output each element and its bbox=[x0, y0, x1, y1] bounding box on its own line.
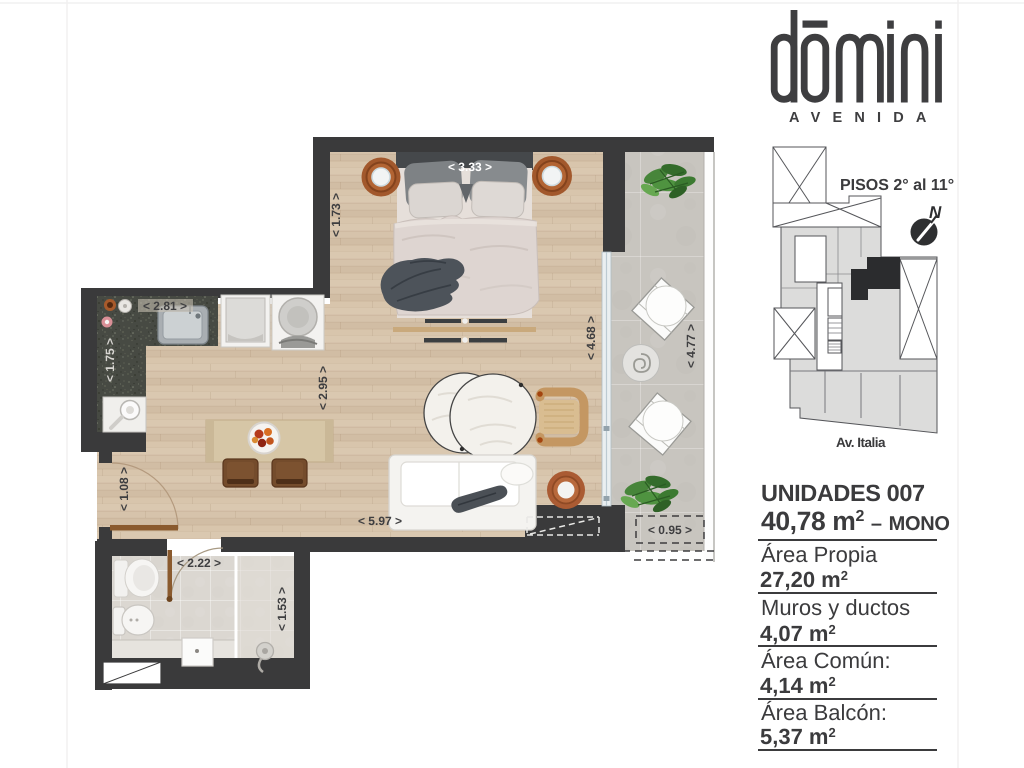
svg-text:PISOS 2° al 11°: PISOS 2° al 11° bbox=[840, 177, 954, 194]
svg-text:N: N bbox=[929, 203, 942, 222]
svg-text:< 1.73 >: < 1.73 > bbox=[329, 193, 343, 237]
svg-text:< 3.33 >: < 3.33 > bbox=[448, 160, 492, 174]
svg-text:< 0.95 >: < 0.95 > bbox=[648, 523, 692, 537]
svg-text:< 1.75 >: < 1.75 > bbox=[103, 338, 117, 382]
svg-text:< 2.95 >: < 2.95 > bbox=[316, 366, 330, 410]
svg-text:< 2.22 >: < 2.22 > bbox=[177, 556, 221, 570]
svg-text:< 4.77 >: < 4.77 > bbox=[684, 324, 698, 368]
svg-text:Av. Italia: Av. Italia bbox=[836, 435, 886, 450]
svg-text:< 5.97 >: < 5.97 > bbox=[358, 514, 402, 528]
svg-text:AVENIDA: AVENIDA bbox=[789, 110, 939, 126]
svg-text:< 4.68 >: < 4.68 > bbox=[584, 316, 598, 360]
svg-text:< 1.08 >: < 1.08 > bbox=[117, 467, 131, 511]
svg-text:< 1.53 >: < 1.53 > bbox=[275, 587, 289, 631]
svg-text:< 2.81 >: < 2.81 > bbox=[143, 299, 187, 313]
